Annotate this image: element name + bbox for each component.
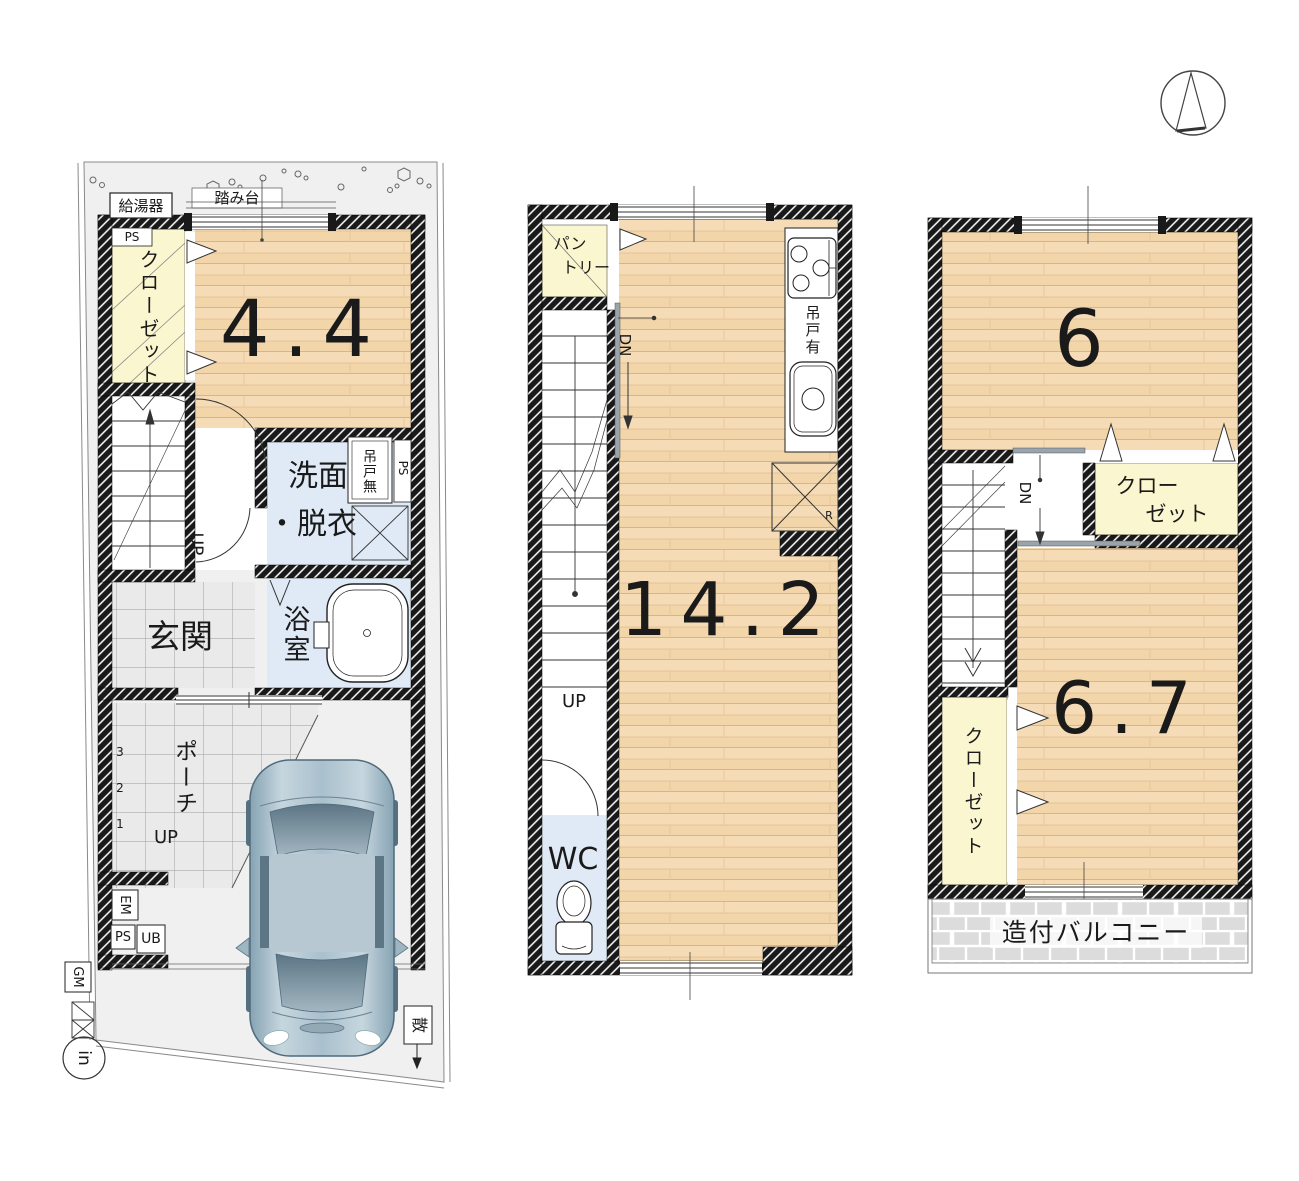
gm-label: GM: [67, 965, 89, 989]
kitchen-sink: [790, 362, 836, 436]
pantry-label-1: パン: [548, 234, 592, 254]
toilet: [556, 881, 592, 954]
room6-size-label: 6: [1014, 296, 1158, 384]
porch-step3-label: 3: [112, 744, 128, 760]
sprinkler-label: 散: [409, 1015, 429, 1035]
hanging-cupboard-none-label: 吊戸無: [359, 441, 379, 501]
room67-size-label: 6.7: [1030, 665, 1226, 751]
ldk-size-label: 14.2: [616, 566, 842, 654]
ps-meter-label: PS: [111, 928, 135, 946]
compass-north-icon: [1161, 71, 1225, 135]
wc-label: WC: [543, 842, 603, 878]
pantry-label-2: トリー: [560, 258, 612, 278]
washroom-label-1: 洗面: [268, 460, 368, 494]
stairs2-up-label: UP: [552, 692, 596, 712]
closet1-label: クローゼット: [134, 258, 162, 378]
closet-upper-label-2: ゼット: [1135, 502, 1219, 526]
porch-step2-label: 2: [112, 780, 128, 796]
water-heater-label: 給湯器: [112, 196, 170, 216]
closet-upper-label-1: クロー: [1105, 474, 1189, 498]
stairs1-up-label: UP: [177, 533, 215, 555]
stairs3-floor: [942, 463, 1005, 687]
hall2-floor: [542, 700, 607, 815]
dn-3f-label: DN: [1010, 480, 1040, 506]
entrance-label: 玄関: [133, 617, 227, 655]
floor-plan-page: 給湯器 踏み台 PS クローゼット 4.4 洗面 ・脱衣 吊戸無 PS 浴室 玄…: [0, 0, 1299, 1181]
catch-basin-symbol: [72, 1002, 94, 1038]
car: [236, 760, 408, 1056]
ub-label: UB: [137, 930, 165, 948]
hanging-cupboard-yes-label: 吊戸有: [801, 300, 823, 360]
porch-step1-label: 1: [112, 816, 128, 832]
stair-sliding-door: [615, 303, 620, 458]
room44-size-label: 4.4: [195, 285, 411, 375]
bathroom-label: 浴室: [279, 595, 309, 675]
ps-closet-label: PS: [112, 229, 152, 245]
porch-label: ポーチ: [170, 728, 196, 828]
ps-washroom-label: PS: [395, 456, 411, 480]
stove: [788, 238, 836, 298]
boundary-marker-label: in: [74, 1045, 94, 1071]
washroom-label-2: ・脱衣: [256, 508, 368, 542]
balcony-label: 造付バルコニー: [988, 917, 1204, 947]
porch-up-label: UP: [145, 828, 187, 848]
dn-2f-label: DN: [610, 332, 640, 358]
hall3-sliding-door-top: [1013, 448, 1085, 453]
em-label: EM: [114, 893, 136, 917]
room67-sliding-door: [1018, 541, 1140, 546]
refrigerator-label: R: [822, 508, 836, 522]
closet-lower-label: クローゼット: [958, 712, 986, 872]
step-stool-label: 踏み台: [196, 189, 278, 207]
